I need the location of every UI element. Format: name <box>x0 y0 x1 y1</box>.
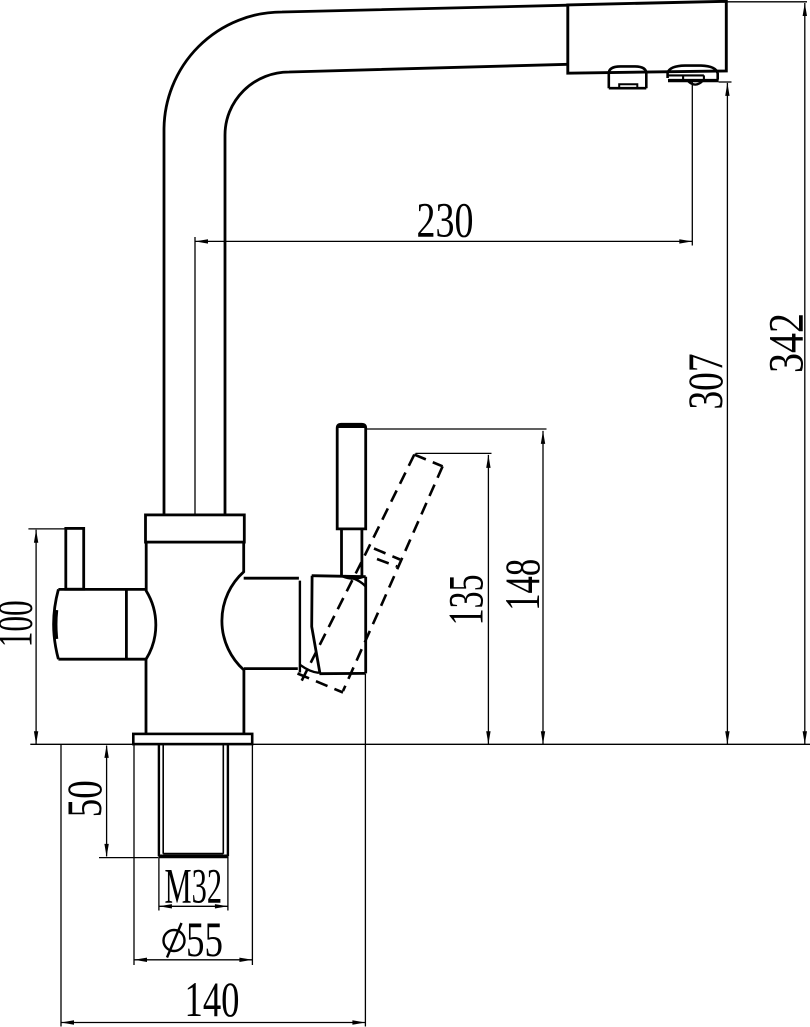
svg-text:342: 342 <box>759 313 810 373</box>
svg-text:230: 230 <box>417 193 474 248</box>
svg-text:50: 50 <box>57 780 112 817</box>
svg-text:55: 55 <box>186 912 223 967</box>
svg-text:140: 140 <box>185 972 240 1027</box>
svg-text:135: 135 <box>438 574 493 625</box>
svg-text:M32: M32 <box>165 859 223 914</box>
svg-text:100: 100 <box>0 600 43 647</box>
svg-text:148: 148 <box>495 559 550 611</box>
svg-text:307: 307 <box>678 354 733 410</box>
